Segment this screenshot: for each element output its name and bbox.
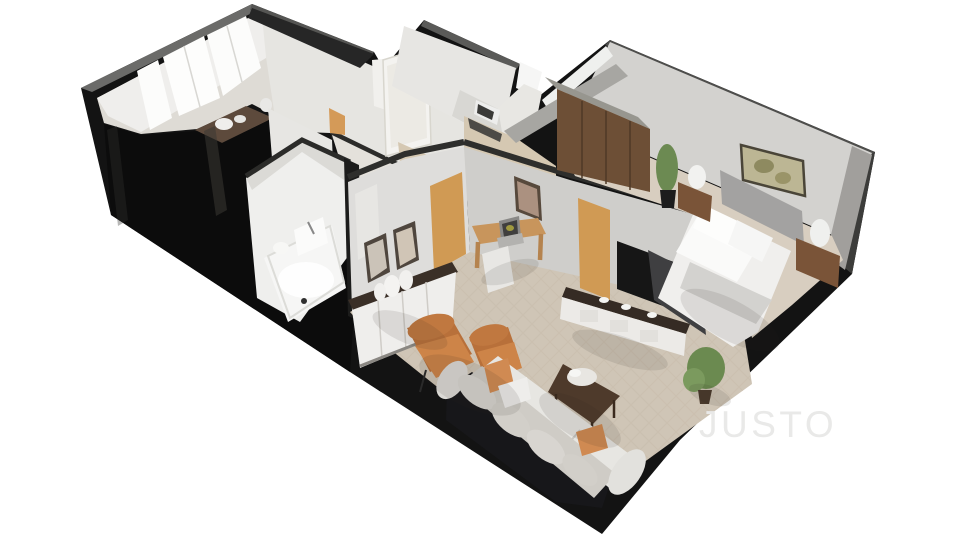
svg-text:JUSTO: JUSTO bbox=[699, 404, 837, 445]
